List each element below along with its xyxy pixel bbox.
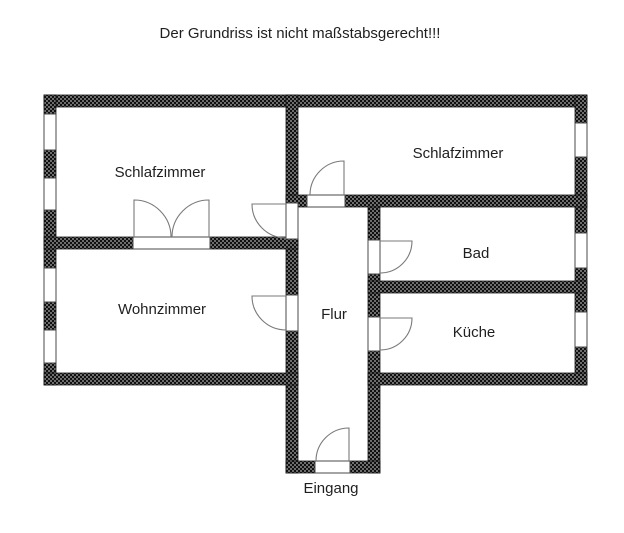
label-kueche: Küche bbox=[453, 324, 496, 341]
floor-plan-canvas: Der Grundriss ist nicht maßstabsgerecht!… bbox=[0, 0, 624, 533]
floor-plan: Der Grundriss ist nicht maßstabsgerecht!… bbox=[0, 0, 624, 533]
label-flur: Flur bbox=[321, 306, 347, 323]
door-sill-bad bbox=[368, 240, 380, 274]
door-arc-wohnzimmer bbox=[252, 296, 286, 330]
wall-top bbox=[44, 95, 587, 107]
window-bad bbox=[575, 233, 587, 268]
window-schlafzimmer-right bbox=[575, 123, 587, 157]
window-wohnzimmer-2 bbox=[44, 330, 56, 363]
label-bad: Bad bbox=[463, 245, 490, 262]
door-arc-kueche bbox=[380, 318, 412, 350]
walls-layer bbox=[44, 95, 587, 473]
door-arc-double-right bbox=[172, 200, 209, 237]
label-schlafzimmer-left: Schlafzimmer bbox=[115, 164, 206, 181]
wall-central-vertical bbox=[286, 95, 298, 473]
wall-bottom-left bbox=[44, 373, 298, 385]
door-arc-eingang bbox=[316, 428, 349, 461]
door-sill-kueche bbox=[368, 317, 380, 351]
label-eingang: Eingang bbox=[303, 480, 358, 497]
label-schlafzimmer-right: Schlafzimmer bbox=[413, 145, 504, 162]
wall-bad-kueche-divider bbox=[368, 281, 587, 293]
window-wohnzimmer-1 bbox=[44, 268, 56, 302]
door-sill-eingang bbox=[315, 461, 350, 473]
door-sill-schlafzimmer-right bbox=[307, 195, 345, 207]
label-wohnzimmer: Wohnzimmer bbox=[118, 301, 206, 318]
wall-bottom-right bbox=[368, 373, 587, 385]
window-schlafzimmer-left-1 bbox=[44, 114, 56, 150]
door-sill-wohnzimmer bbox=[286, 295, 298, 331]
door-arc-schlafzimmer-left bbox=[252, 204, 286, 238]
door-sill-double-door bbox=[133, 237, 210, 249]
door-arc-double-left bbox=[134, 200, 171, 237]
door-arc-bad bbox=[380, 241, 412, 273]
plan-title: Der Grundriss ist nicht maßstabsgerecht!… bbox=[160, 25, 441, 42]
window-schlafzimmer-left-2 bbox=[44, 178, 56, 210]
window-kueche bbox=[575, 312, 587, 347]
door-sill-schlafzimmer-left bbox=[286, 203, 298, 239]
door-arc-schlafzimmer-right bbox=[310, 161, 344, 195]
